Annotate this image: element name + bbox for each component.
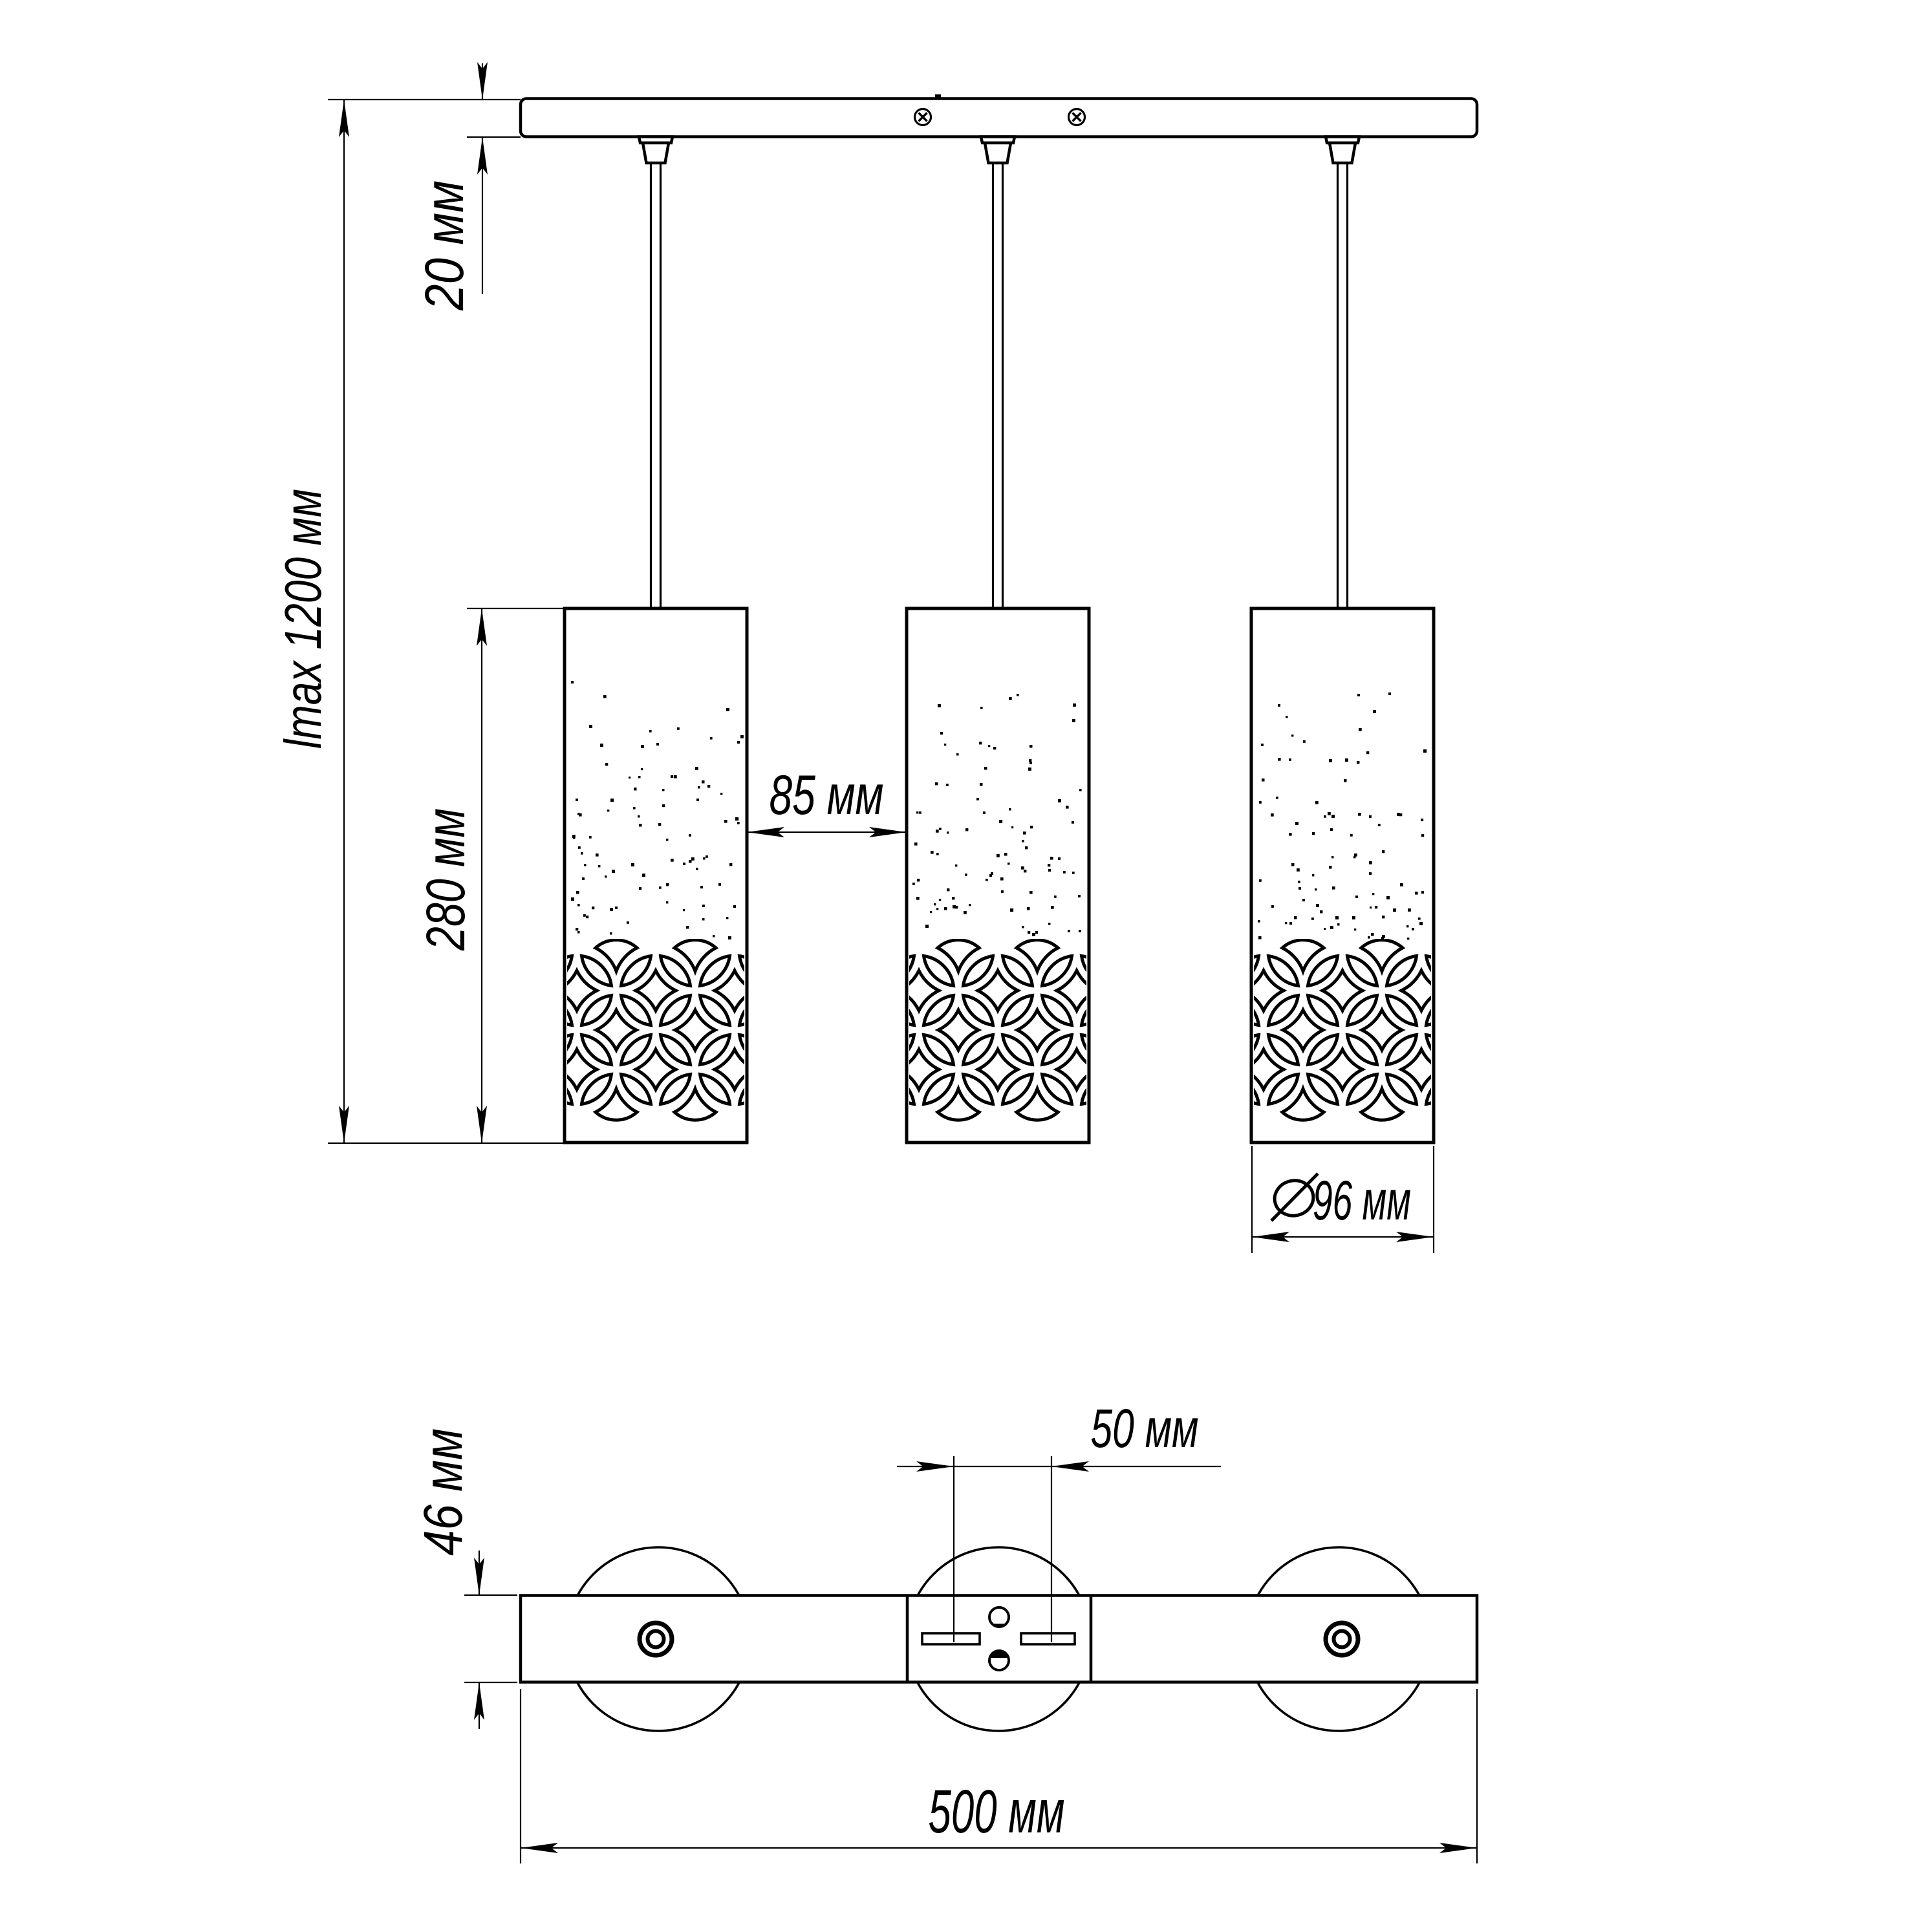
svg-text:lmax 1200 мм: lmax 1200 мм <box>274 489 332 749</box>
svg-text:50 мм: 50 мм <box>1091 1398 1199 1459</box>
svg-text:46 мм: 46 мм <box>413 1428 473 1556</box>
svg-text:280 мм: 280 мм <box>415 808 476 951</box>
svg-text:85 мм: 85 мм <box>770 764 884 826</box>
svg-text:500 мм: 500 мм <box>929 1777 1065 1846</box>
svg-text:96 мм: 96 мм <box>1313 1170 1411 1232</box>
svg-text:20 мм: 20 мм <box>414 180 475 311</box>
